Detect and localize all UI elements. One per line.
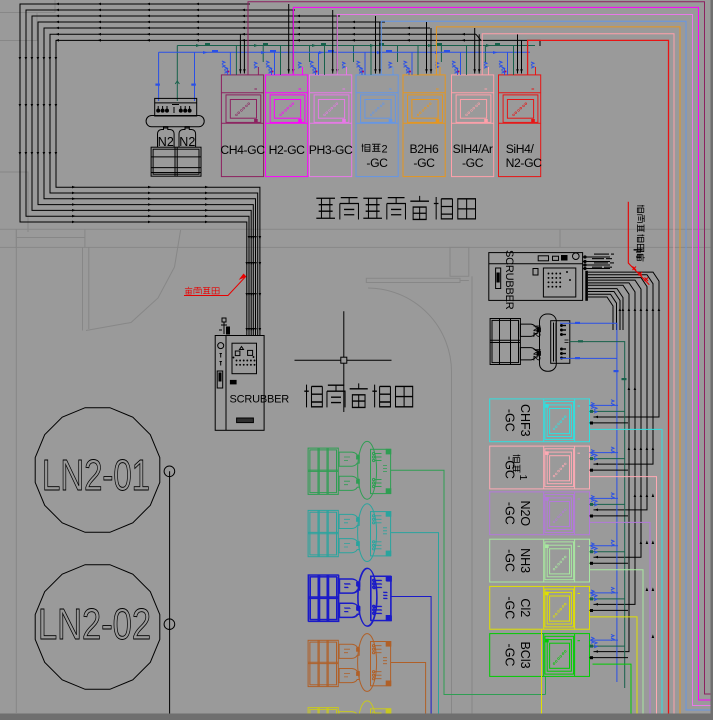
svg-text:-GC: -GC (413, 156, 435, 170)
svg-text:LN2-01: LN2-01 (42, 451, 150, 500)
svg-text:-GC: -GC (366, 156, 388, 170)
svg-text:CHF3: CHF3 (518, 404, 532, 437)
svg-text:H2-GC: H2-GC (269, 143, 306, 157)
svg-text:Cl2: Cl2 (518, 598, 532, 617)
svg-text:SCRUBBER: SCRUBBER (503, 250, 515, 310)
svg-text:PH3-GC: PH3-GC (309, 143, 353, 157)
svg-text:-GC: -GC (503, 456, 517, 479)
svg-text:N2O: N2O (518, 500, 532, 526)
svg-text:1: 1 (517, 475, 529, 481)
svg-text:2: 2 (382, 144, 388, 156)
svg-text:SIH4/Ar: SIH4/Ar (453, 142, 493, 156)
svg-text:CH4-GC: CH4-GC (220, 143, 265, 157)
svg-text:-GC: -GC (503, 502, 517, 525)
svg-text:-GC: -GC (503, 409, 517, 432)
svg-text:N2: N2 (531, 348, 542, 361)
svg-text:SCRUBBER: SCRUBBER (230, 394, 290, 406)
svg-text:B2H6: B2H6 (410, 142, 440, 156)
svg-text:SiH4/: SiH4/ (506, 142, 535, 156)
svg-text:LN2-02: LN2-02 (38, 600, 151, 649)
svg-text:-GC: -GC (503, 549, 517, 572)
svg-text:N2-GC: N2-GC (506, 156, 543, 170)
svg-text:BCl3: BCl3 (518, 641, 532, 668)
svg-text:N2: N2 (531, 325, 542, 338)
svg-text:-GC: -GC (503, 596, 517, 619)
svg-text:-GC: -GC (503, 644, 517, 667)
svg-text:NH3: NH3 (518, 548, 532, 573)
svg-text:-GC: -GC (462, 156, 484, 170)
